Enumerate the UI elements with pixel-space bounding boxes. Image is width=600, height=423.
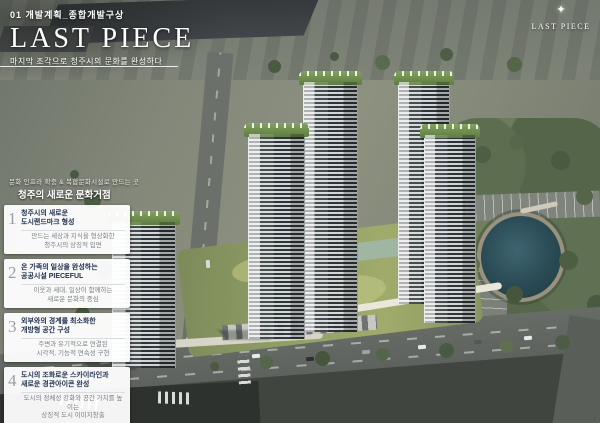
point-title: 도시의 조화로운 스카이라인과 새로운 경관아이콘 완성 <box>21 371 125 389</box>
car <box>524 336 532 341</box>
crosswalk <box>158 391 192 404</box>
car <box>474 340 482 345</box>
tower-front-right <box>424 135 476 323</box>
point-title: 청주시의 새로운 도시랜드마크 형성 <box>21 209 125 227</box>
point-card-2: 2 온 가족의 일상을 완성하는 공공시설 PIECEFUL 이웃과 세대, 일… <box>4 259 130 308</box>
car <box>252 354 260 359</box>
corner-logo: ✦ LAST PIECE <box>530 5 592 34</box>
car <box>418 345 426 350</box>
car <box>306 357 314 362</box>
tower-back-center <box>303 82 358 332</box>
point-number: 3 <box>8 317 21 358</box>
divider <box>21 392 125 393</box>
sidebar-headline: 청주의 새로운 문화거점 <box>18 187 130 201</box>
point-body: 청주시의 새로운 도시랜드마크 형성 만드는 세상과 지식을 형상화한 청주시의… <box>21 209 125 250</box>
point-desc: 이웃과 세대, 일상이 함께하는 새로운 문화의 중심 <box>21 287 125 304</box>
divider <box>21 284 125 285</box>
header-rule <box>0 66 178 67</box>
point-body: 도시의 조화로운 스카이라인과 새로운 경관아이콘 완성 도시의 정체성 강화와… <box>21 371 125 421</box>
page-title: LAST PIECE <box>10 24 194 53</box>
point-desc: 주변과 유기적으로 연결된 시각적, 기능적 연속성 구현 <box>21 341 125 358</box>
point-desc: 만드는 세상과 지식을 형상화한 청주시의 상징적 입면 <box>21 233 125 250</box>
sparkle-icon: ✦ <box>530 5 592 16</box>
crosswalk <box>237 356 251 385</box>
point-number: 1 <box>8 209 21 250</box>
section-kicker: 01 개발계획_종합개발구상 <box>10 8 194 21</box>
tree-cluster-road <box>210 362 219 371</box>
divider <box>21 230 125 231</box>
point-card-1: 1 청주시의 새로운 도시랜드마크 형성 만드는 세상과 지식을 형상화한 청주… <box>4 205 130 254</box>
divider <box>21 338 125 339</box>
tower-mid-left <box>248 134 305 339</box>
point-title: 온 가족의 일상을 완성하는 공공시설 PIECEFUL <box>21 263 125 281</box>
point-card-3: 3 외부와의 경계를 최소화한 개방형 공간 구성 주변과 유기적으로 연결된 … <box>4 313 130 362</box>
sidebar-intro: 문화 인프라 확충 & 복합문화시설로 만드는 곳 <box>9 176 130 186</box>
slide: 01 개발계획_종합개발구상 LAST PIECE 마지막 조각으로 청주시의 … <box>0 0 600 423</box>
point-body: 외부와의 경계를 최소화한 개방형 공간 구성 주변과 유기적으로 연결된 시각… <box>21 317 125 358</box>
logo-text: LAST PIECE <box>531 22 590 31</box>
tree-cluster-top <box>330 52 339 61</box>
point-title: 외부와의 경계를 최소화한 개방형 공간 구성 <box>21 317 125 335</box>
point-body: 온 가족의 일상을 완성하는 공공시설 PIECEFUL 이웃과 세대, 일상이… <box>21 263 125 304</box>
point-number: 2 <box>8 263 21 304</box>
point-card-4: 4 도시의 조화로운 스카이라인과 새로운 경관아이콘 완성 도시의 정체성 강… <box>4 367 130 423</box>
point-desc: 도시의 정체성 강화와 공간 가치를 높이는 상징적 도시 이미지창출 <box>21 395 125 420</box>
header: 01 개발계획_종합개발구상 LAST PIECE 마지막 조각으로 청주시의 … <box>10 8 194 67</box>
key-points-sidebar: 문화 인프라 확충 & 복합문화시설로 만드는 곳 청주의 새로운 문화거점 1… <box>4 176 130 423</box>
car <box>362 350 370 355</box>
car <box>206 260 211 268</box>
point-number: 4 <box>8 371 21 421</box>
